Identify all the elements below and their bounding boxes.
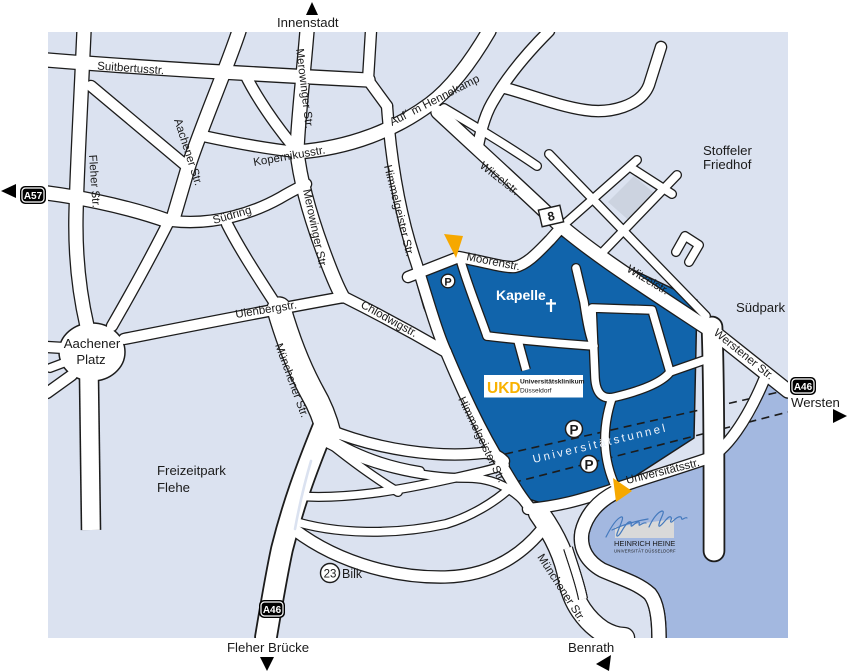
svg-text:Stoffeler: Stoffeler (703, 143, 752, 158)
svg-text:P: P (444, 277, 451, 289)
svg-text:Bilk: Bilk (342, 567, 363, 581)
svg-text:Universitätsklinikum: Universitätsklinikum (520, 379, 585, 386)
svg-text:Südpark: Südpark (736, 300, 786, 315)
svg-text:Platz: Platz (76, 352, 105, 367)
svg-text:HEINRICH HEINE: HEINRICH HEINE (614, 539, 675, 548)
svg-text:UNIVERSITÄT DÜSSELDORF: UNIVERSITÄT DÜSSELDORF (614, 549, 676, 554)
svg-text:Wersten: Wersten (791, 395, 840, 410)
svg-text:Aachener: Aachener (64, 336, 121, 351)
svg-text:UKD: UKD (487, 380, 521, 397)
svg-text:23: 23 (324, 569, 337, 581)
svg-text:Flehe: Flehe (157, 480, 190, 495)
svg-text:Innenstadt: Innenstadt (277, 15, 339, 30)
svg-text:A46: A46 (794, 382, 813, 393)
svg-text:A46: A46 (263, 605, 282, 616)
svg-text:Friedhof: Friedhof (703, 157, 752, 172)
svg-text:Benrath: Benrath (568, 640, 614, 655)
svg-text:Düsseldorf: Düsseldorf (520, 388, 552, 395)
svg-text:Freizeitpark: Freizeitpark (157, 463, 226, 478)
svg-text:Fleher Brücke: Fleher Brücke (227, 640, 309, 655)
svg-text:A57: A57 (24, 191, 43, 202)
svg-text:P: P (569, 423, 578, 438)
svg-text:P: P (584, 458, 593, 473)
svg-text:Kapelle: Kapelle (496, 287, 546, 303)
